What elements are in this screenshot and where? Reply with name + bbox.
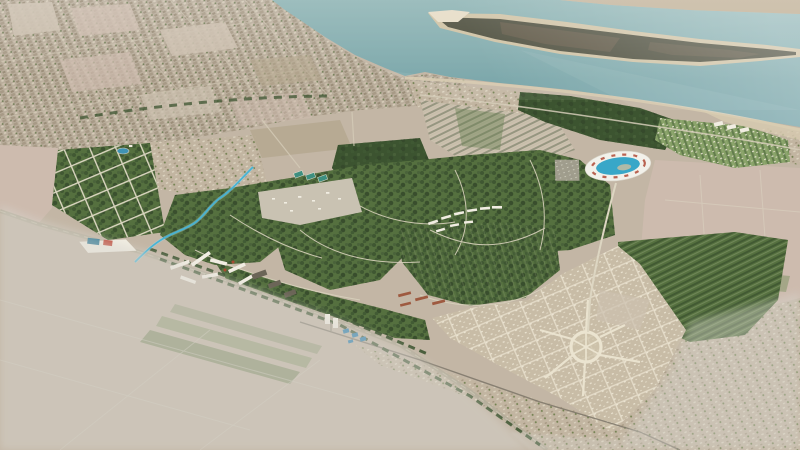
masterplan-scene — [0, 0, 800, 450]
arena-parking — [553, 157, 582, 184]
aerial-render — [0, 0, 800, 450]
atmosphere-haze — [0, 0, 800, 80]
